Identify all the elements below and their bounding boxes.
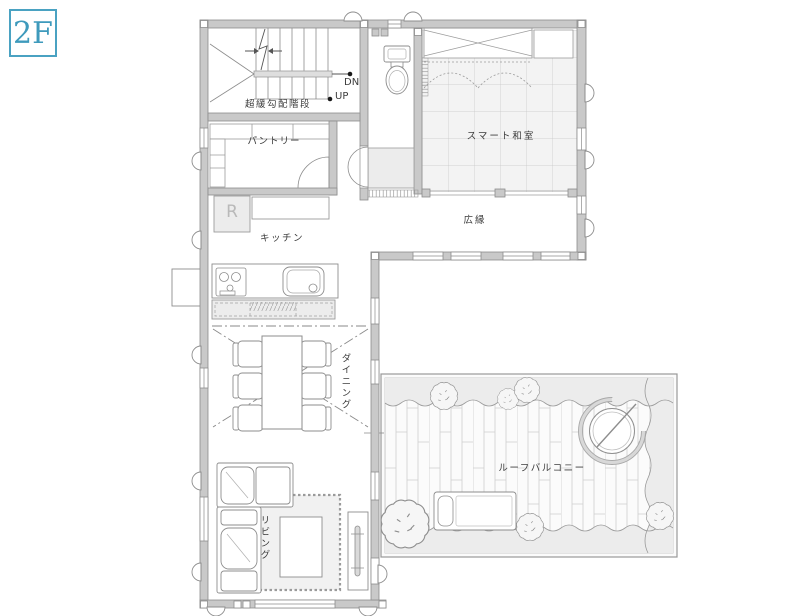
coffee-table [280, 517, 322, 577]
floor-plan-drawing [0, 0, 796, 616]
floor-badge: 2F [9, 9, 57, 57]
stairs-up-dot [328, 97, 333, 102]
stove [216, 268, 246, 296]
kitchen-vent-box [172, 269, 203, 306]
bush [517, 514, 544, 541]
toilet-room [348, 46, 418, 197]
stairs-label: 超緩勾配階段 [238, 99, 318, 110]
pantry-label: パントリー [244, 136, 304, 147]
living-label: リビング [258, 515, 269, 561]
floor-badge-label: 2F [13, 16, 53, 51]
bush [381, 500, 429, 548]
stairs-down-dot [348, 72, 353, 77]
tv [355, 526, 360, 576]
balcony-lounge-chair [434, 492, 516, 530]
veranda-label: 広縁 [450, 215, 500, 226]
japanese-room-floor [422, 28, 577, 195]
pantry-door [298, 157, 329, 188]
living-area [217, 463, 368, 593]
hall-closet [368, 148, 414, 188]
stairs-up-label: UP [335, 91, 348, 103]
dining-label: ダイニング [339, 353, 350, 411]
kitchen-label: キッチン [251, 233, 313, 244]
tv-board [348, 512, 368, 590]
refrigerator-label: R [214, 202, 250, 222]
bush [647, 503, 674, 530]
bush [431, 383, 458, 410]
kitchen-island [212, 300, 335, 319]
roof-balcony-label: ルーフバルコニー [492, 463, 592, 474]
dining-table [262, 336, 302, 429]
sink [283, 267, 324, 296]
pantry-room [210, 124, 329, 188]
bush [515, 378, 540, 403]
staircase [210, 28, 352, 102]
floor-plan-page: 2F 超緩勾配階段 DN UP パントリー R キッチン スマート和室 広縁 ダ… [0, 0, 796, 616]
japanese-room-label: スマート和室 [458, 131, 544, 142]
stairs-down-label: DN [344, 77, 359, 89]
